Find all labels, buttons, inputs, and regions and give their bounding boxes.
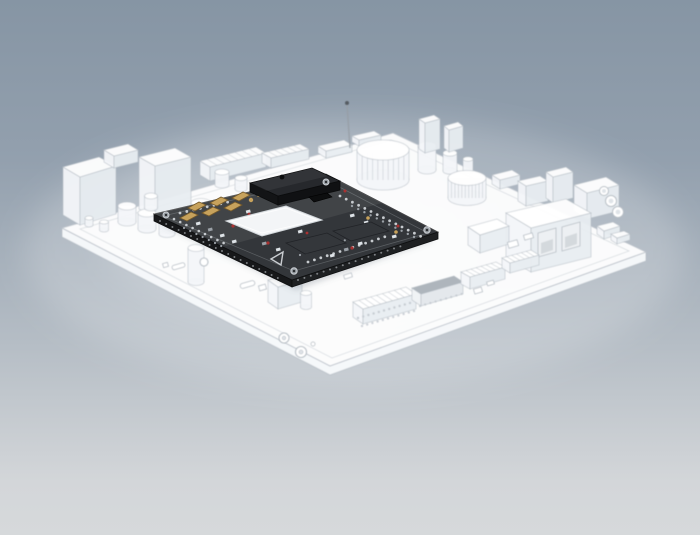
capacitor: [215, 169, 229, 188]
passives-row-dot: [382, 216, 385, 219]
edge-pads-dot: [227, 253, 229, 255]
edge-pads-dot: [171, 226, 173, 228]
passives-row-dot: [383, 235, 386, 238]
header-pins-dot: [367, 314, 369, 316]
header-pins-dot: [435, 300, 437, 302]
header-pins-dot: [383, 309, 385, 311]
edge-pads-dot: [246, 262, 248, 264]
edge-pads-dot: [361, 258, 363, 260]
passives-row-dot: [183, 227, 185, 229]
header-pins-dot: [402, 313, 404, 315]
small-connector: [419, 115, 440, 153]
passives-row-dot: [345, 198, 348, 201]
passives-row-dot: [369, 214, 371, 216]
heatsink-drum-top: [448, 171, 486, 186]
standoff-top: [301, 291, 312, 296]
passives-row-dot: [351, 201, 354, 204]
edge-pads-dot: [355, 260, 357, 262]
standoff-top: [188, 245, 204, 252]
gold-cap: [366, 216, 370, 220]
edge-pads-dot: [221, 250, 223, 252]
passives-row-dot: [202, 236, 204, 238]
header-pins-dot: [450, 296, 452, 298]
edge-pads-dot: [209, 244, 211, 246]
edge-pads-dot: [264, 271, 266, 273]
mounting-hole-center: [325, 181, 327, 183]
passives-row-dot: [222, 242, 225, 245]
edge-pads-dot: [277, 277, 279, 279]
header-pins-dot: [424, 303, 426, 305]
header-pins-dot: [387, 317, 389, 319]
passives-row-dot: [179, 221, 182, 224]
header-pins-dot: [376, 320, 378, 322]
header-pins-dot: [372, 312, 374, 314]
header-pins-dot: [382, 319, 384, 321]
passives-row-dot: [394, 227, 396, 229]
capacitor-top: [215, 169, 229, 175]
mounting-pad-hole: [299, 350, 303, 354]
header-pins-dot: [429, 302, 431, 304]
led-red: [266, 241, 269, 244]
edge-pads-dot: [303, 277, 305, 279]
header-pins-dot: [404, 303, 406, 305]
passives-row-dot: [307, 261, 310, 264]
passives-row-dot: [339, 250, 342, 253]
mounting-hole-center: [165, 214, 167, 216]
capacitor: [235, 175, 247, 192]
header-pins-dot: [455, 294, 457, 296]
passives-row-dot: [401, 226, 404, 229]
mounting-hole-center: [426, 229, 429, 232]
header-pins-dot: [362, 315, 364, 317]
edge-pads-dot: [323, 271, 325, 273]
header-pins-dot: [409, 302, 411, 304]
header-pins-dot: [388, 308, 390, 310]
usb-stack: [518, 176, 548, 206]
led-red: [306, 232, 309, 235]
capacitor-top: [100, 220, 109, 224]
passives-row-dot: [313, 259, 316, 262]
small-connector-face-left: [419, 119, 425, 153]
edge-pads-dot: [184, 232, 186, 234]
passives-row-dot: [364, 242, 367, 245]
passives-row-dot: [195, 233, 197, 235]
power-inductor: [357, 140, 409, 190]
passives-row-dot: [400, 230, 402, 232]
capacitor-top: [145, 193, 158, 199]
edge-pads-dot: [271, 274, 273, 276]
passives-row-dot: [357, 204, 360, 207]
passives-row-dot: [370, 210, 373, 213]
passives-row-dot: [208, 239, 210, 241]
passives-row-dot: [394, 223, 397, 226]
edge-pads-dot: [178, 229, 180, 231]
header-pins-dot: [445, 297, 447, 299]
capacitor: [85, 216, 93, 227]
test-pad: [200, 258, 208, 266]
capacitor: [118, 202, 136, 226]
audio-port-hole: [616, 210, 621, 215]
passives-row-dot: [220, 245, 222, 247]
passives-row-dot: [214, 242, 216, 244]
product-image: [0, 0, 700, 535]
small-connector-face-right: [425, 119, 440, 153]
capacitor: [100, 220, 109, 232]
gold-cap: [249, 198, 253, 202]
header-pins-dot: [398, 305, 400, 307]
header-pins-dot: [413, 310, 415, 312]
edge-pads-dot: [215, 247, 217, 249]
audio-port-hole: [602, 189, 606, 193]
small-connector-face-right: [449, 126, 463, 152]
edge-pads-dot: [399, 245, 401, 247]
header-pins-dot: [357, 317, 359, 319]
edge-pads-dot: [342, 264, 344, 266]
audio-port-hole: [609, 199, 614, 204]
header-pins-dot: [393, 306, 395, 308]
passives-row-dot: [377, 238, 380, 241]
header-pins-dot: [392, 316, 394, 318]
led-red: [344, 190, 347, 193]
header-pins-dot: [378, 311, 380, 313]
edge-pads-dot: [252, 265, 254, 267]
edge-pads-dot: [159, 220, 161, 222]
passives-row-dot: [173, 218, 176, 221]
header-pins-dot: [366, 323, 368, 325]
edge-pads-dot: [233, 256, 235, 258]
scene-svg: [0, 0, 700, 535]
edge-pads-dot: [374, 254, 376, 256]
capacitor-top: [463, 157, 473, 162]
edge-pads-dot: [190, 235, 192, 237]
passives-row-dot: [206, 205, 209, 208]
header-pins-dot: [440, 299, 442, 301]
passives-row-dot: [388, 223, 390, 225]
standoff: [301, 291, 312, 310]
passives-row-dot: [419, 235, 422, 238]
edge-pads-dot: [258, 268, 260, 270]
header-pins-dot: [461, 293, 463, 295]
passives-row-dot: [185, 224, 188, 227]
passives-row-dot: [191, 227, 194, 230]
capacitor: [138, 209, 156, 233]
header-shroud: [63, 157, 116, 225]
capacitor-top: [118, 202, 136, 210]
passives-row-dot: [376, 213, 379, 216]
edge-pads-dot: [240, 259, 242, 261]
edge-pads-dot: [387, 250, 389, 252]
passives-row-dot: [413, 232, 416, 235]
passives-row-dot: [363, 211, 365, 213]
passives-row-dot: [357, 208, 359, 210]
capacitor-top: [235, 175, 247, 181]
passives-row-dot: [388, 219, 391, 222]
passives-row-dot: [376, 217, 378, 219]
edge-pads-dot: [165, 223, 167, 225]
passives-row-dot: [185, 210, 188, 213]
small-connector: [444, 122, 463, 152]
edge-pads-dot: [335, 266, 337, 268]
passives-row-dot: [413, 236, 415, 238]
led-red: [350, 246, 353, 249]
edge-pads-dot: [393, 248, 395, 250]
header-pins-dot: [408, 311, 410, 313]
passives-row-dot: [382, 220, 384, 222]
edge-pads-dot: [329, 269, 331, 271]
passives-row-dot: [179, 212, 182, 215]
capacitor-top: [85, 216, 93, 220]
mounting-pad-hole: [282, 336, 286, 340]
header-pins-dot: [397, 314, 399, 316]
edge-pads-dot: [380, 252, 382, 254]
edge-pads-dot: [367, 256, 369, 258]
edge-pads-dot: [310, 275, 312, 277]
edge-pads-dot: [297, 279, 299, 281]
passives-row-dot: [216, 239, 219, 242]
gold-cap: [394, 230, 398, 234]
passives-row-dot: [344, 239, 346, 241]
led-red: [397, 225, 400, 228]
passives-row-dot: [319, 256, 322, 259]
passives-row-dot: [351, 205, 353, 207]
shield-marker: [280, 175, 285, 180]
header-pins-dot: [371, 322, 373, 324]
power-inductor-top: [357, 140, 409, 160]
capacitor: [145, 193, 158, 211]
test-pad: [311, 342, 315, 346]
passives-row-dot: [210, 236, 213, 239]
edge-pads-dot: [348, 262, 350, 264]
header-pins-dot: [361, 325, 363, 327]
passives-row-dot: [189, 230, 191, 232]
edge-pads-dot: [316, 273, 318, 275]
heatsink-drum: [448, 171, 486, 206]
edge-pads-dot: [202, 241, 204, 243]
edge-pads-dot: [196, 238, 198, 240]
passives-row-dot: [363, 207, 366, 210]
passives-row-dot: [204, 233, 207, 236]
antenna-tip: [345, 101, 349, 105]
passives-row-dot: [326, 254, 329, 257]
passives-row-dot: [371, 240, 374, 243]
passives-row-dot: [299, 254, 301, 256]
mounting-hole-center: [293, 270, 296, 273]
passives-row-dot: [198, 230, 201, 233]
passives-row-dot: [407, 233, 409, 235]
solder-pad: [163, 262, 169, 267]
usb-stack: [546, 167, 573, 203]
passives-row-dot: [407, 229, 410, 232]
passives-row-dot: [339, 195, 342, 198]
capacitor: [443, 150, 457, 174]
header-pins-dot: [419, 305, 421, 307]
